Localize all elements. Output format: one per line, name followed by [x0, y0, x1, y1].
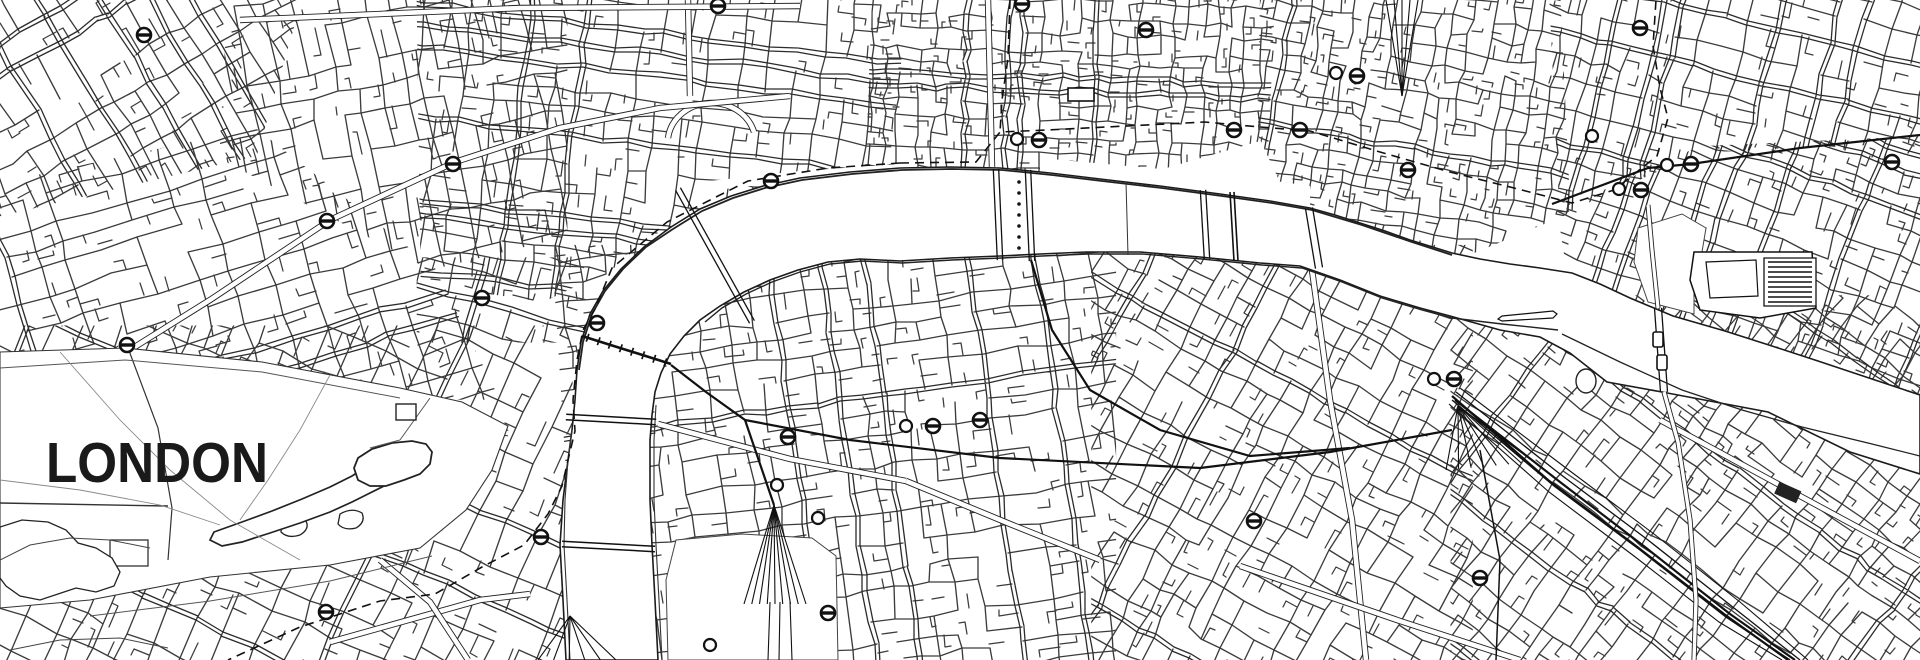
svg-text:LONDON: LONDON: [46, 431, 268, 495]
